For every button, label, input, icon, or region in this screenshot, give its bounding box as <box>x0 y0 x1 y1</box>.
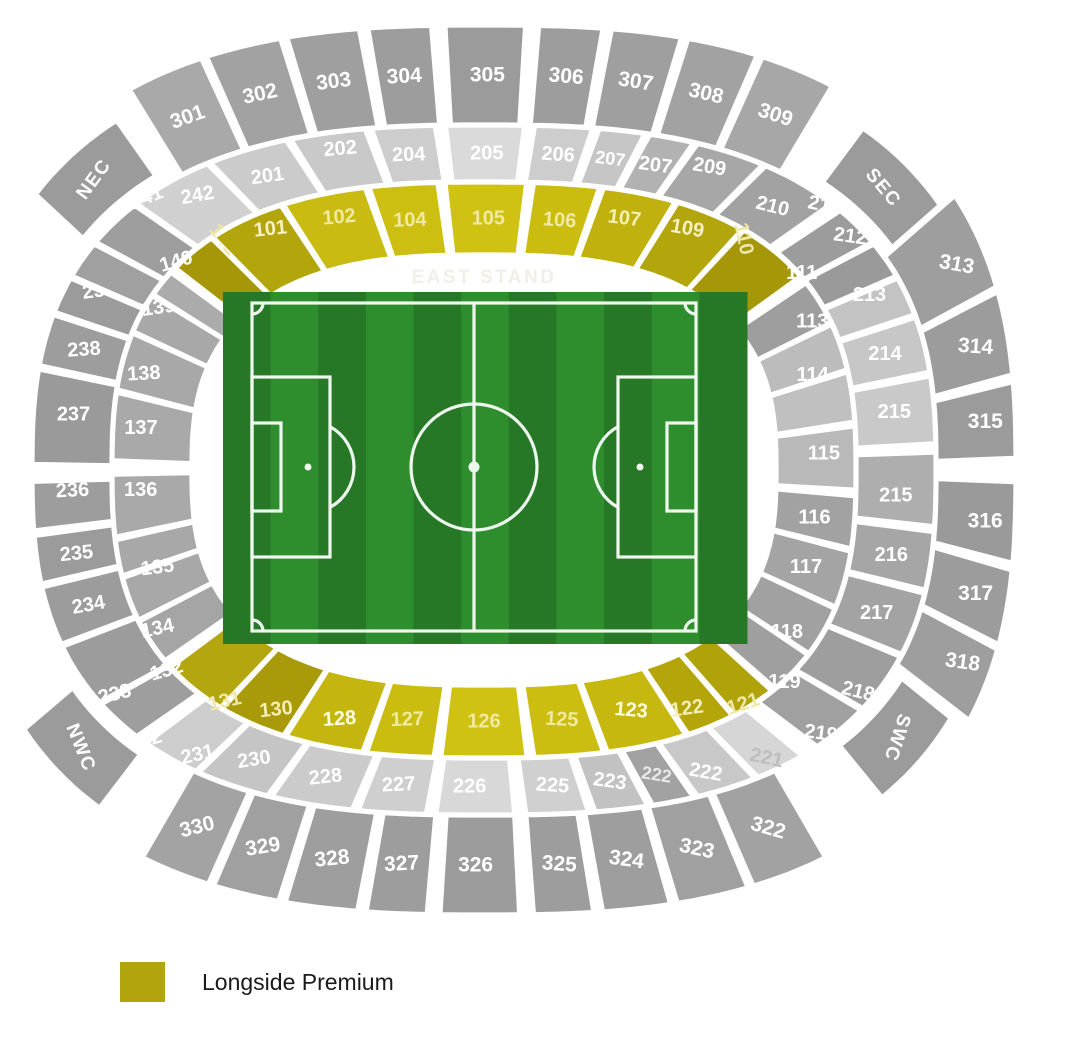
section-138-label: 138 <box>127 362 161 386</box>
section-204[interactable]: 204 <box>374 127 442 182</box>
section-113-label: 113 <box>796 311 828 333</box>
section-318-label: 318 <box>944 648 982 676</box>
section-225[interactable]: 225 <box>520 758 586 813</box>
section-116-label: 116 <box>798 507 830 529</box>
pitch-grass-stripe <box>604 292 652 644</box>
pitch-grass-stripe <box>318 292 366 644</box>
section-326[interactable]: 326 <box>442 817 518 913</box>
section-236[interactable]: 236 <box>34 479 111 529</box>
section-115-label: 115 <box>808 443 840 465</box>
section-304-label: 304 <box>386 64 423 89</box>
section-213-label: 213 <box>853 284 886 306</box>
section-238-label: 238 <box>67 337 102 361</box>
legend-swatch-longside-premium <box>120 962 165 1002</box>
section-107-label: 107 <box>606 205 642 231</box>
section-101-label: 101 <box>253 216 288 241</box>
pitch-grass-stripe <box>509 292 557 644</box>
legend-label: Longside Premium <box>202 969 394 996</box>
pitch-grass-stripe <box>271 292 319 644</box>
section-306-label: 306 <box>548 63 585 89</box>
section-215-upper-label: 215 <box>878 401 911 423</box>
pitch-grass-stripe <box>652 292 700 644</box>
section-122-label: 122 <box>669 695 705 721</box>
pitch-grass-stripe <box>699 292 747 644</box>
section-215-lower[interactable]: 215 <box>857 454 934 524</box>
section-237-label: 237 <box>57 403 90 425</box>
section-227[interactable]: 227 <box>361 757 435 813</box>
section-105-label: 105 <box>472 208 505 230</box>
penalty-spot-left <box>305 464 312 471</box>
section-325-label: 325 <box>541 851 578 876</box>
section-217-label: 217 <box>860 602 893 624</box>
section-202-label: 202 <box>323 136 358 161</box>
pitch-grass-stripe <box>223 292 271 644</box>
section-126[interactable]: 126 <box>443 687 525 756</box>
section-215-lower-label: 215 <box>879 485 912 507</box>
section-204-label: 204 <box>392 143 427 166</box>
section-324-label: 324 <box>608 846 646 874</box>
section-305-label: 305 <box>470 64 505 87</box>
section-236-label: 236 <box>55 479 89 503</box>
section-216[interactable]: 216 <box>850 524 932 588</box>
section-225-label: 225 <box>535 773 570 797</box>
section-325[interactable]: 325 <box>528 815 592 913</box>
section-212-label: 212 <box>832 223 868 249</box>
east-stand-label: EAST STAND <box>412 267 557 288</box>
section-306[interactable]: 306 <box>532 27 600 125</box>
section-214-label: 214 <box>868 343 902 365</box>
section-314-label: 314 <box>957 334 994 359</box>
section-315-label: 315 <box>968 410 1003 433</box>
pitch-grass-stripe <box>461 292 509 644</box>
pitch <box>223 292 748 644</box>
section-205[interactable]: 205 <box>448 127 523 180</box>
section-104-label: 104 <box>393 209 428 232</box>
section-201-label: 201 <box>250 163 286 189</box>
section-111-label: 111 <box>786 262 817 284</box>
section-303-label: 303 <box>315 68 353 95</box>
section-315[interactable]: 315 <box>936 384 1014 459</box>
section-102-label: 102 <box>322 205 357 230</box>
section-235-label: 235 <box>59 541 94 566</box>
pitch-grass-stripe <box>557 292 605 644</box>
section-223-label: 223 <box>592 768 628 794</box>
section-226-label: 226 <box>453 776 486 798</box>
section-215-upper[interactable]: 215 <box>854 378 934 446</box>
section-228-label: 228 <box>308 764 343 789</box>
pitch-grass-stripe <box>414 292 462 644</box>
section-119-label: 119 <box>768 671 800 693</box>
section-136-label: 136 <box>124 479 157 501</box>
section-304[interactable]: 304 <box>370 27 437 125</box>
section-316[interactable]: 316 <box>936 481 1015 561</box>
section-328-label: 328 <box>313 845 351 872</box>
section-206-label: 206 <box>541 143 576 167</box>
section-114-label: 114 <box>796 364 829 386</box>
section-305[interactable]: 305 <box>447 27 524 123</box>
legend: Longside Premium <box>120 962 394 1002</box>
section-105[interactable]: 105 <box>447 184 524 253</box>
section-219-label: 219 <box>803 720 839 746</box>
section-205-label: 205 <box>470 143 503 165</box>
section-125-label: 125 <box>545 708 579 732</box>
centre-spot <box>469 462 480 473</box>
penalty-spot-right <box>637 464 644 471</box>
section-226[interactable]: 226 <box>438 760 513 813</box>
section-137-label: 137 <box>124 417 157 439</box>
section-128-label: 128 <box>322 707 357 731</box>
section-237[interactable]: 237 <box>34 371 115 463</box>
section-317-label: 317 <box>958 582 993 605</box>
section-117-label: 117 <box>790 556 822 578</box>
section-106-label: 106 <box>542 208 577 232</box>
section-216-label: 216 <box>875 544 908 566</box>
section-127-label: 127 <box>390 708 424 731</box>
section-327-label: 327 <box>383 851 419 876</box>
section-316-label: 316 <box>968 510 1003 533</box>
section-207-right-label: 207 <box>637 152 673 178</box>
section-207-left-label: 207 <box>594 147 626 171</box>
section-135-label: 135 <box>140 554 176 580</box>
section-115[interactable]: 115 <box>777 428 854 488</box>
section-227-label: 227 <box>381 773 415 797</box>
section-123-label: 123 <box>614 698 649 723</box>
section-130-label: 130 <box>258 697 293 722</box>
section-327[interactable]: 327 <box>368 815 433 913</box>
section-326-label: 326 <box>458 854 493 877</box>
pitch-grass-stripe <box>366 292 414 644</box>
section-206[interactable]: 206 <box>528 127 591 182</box>
stadium-seating-map: NECSECSWCNWC3013023033043053063073083093… <box>0 0 1089 1051</box>
section-136[interactable]: 136 <box>114 475 192 535</box>
section-126-label: 126 <box>467 711 500 733</box>
